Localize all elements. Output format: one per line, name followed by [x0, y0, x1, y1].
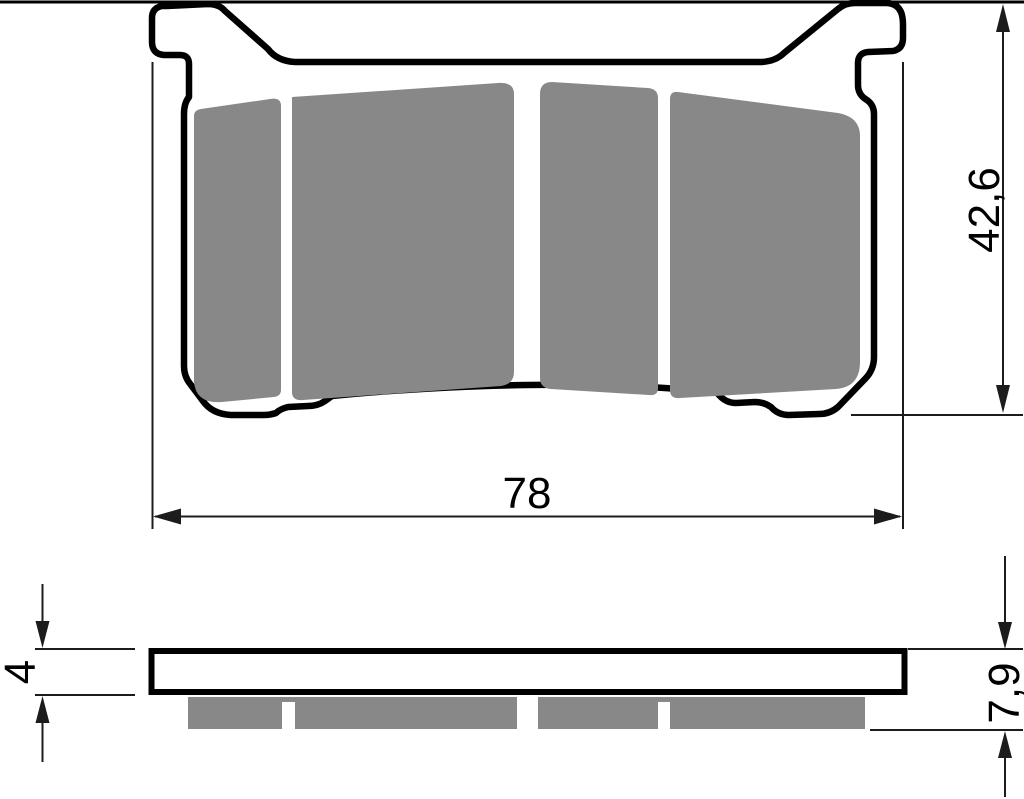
arrowhead-up-icon	[998, 731, 1012, 758]
friction-side-segment-4	[670, 697, 865, 729]
friction-segment-3	[540, 82, 658, 395]
friction-segment-2	[292, 83, 514, 400]
arrowhead-up-icon	[36, 696, 50, 723]
friction-material-side	[188, 697, 865, 729]
friction-side-segment-3	[538, 697, 658, 729]
width-dimension-label: 78	[503, 469, 552, 518]
backplate-side	[152, 651, 905, 692]
technical-drawing-canvas: 78 42,6 4 7,9	[0, 0, 1024, 799]
backplate-thickness-dimension: 4	[0, 584, 135, 762]
groove-bridge-left	[280, 697, 297, 702]
arrowhead-right-icon	[874, 509, 902, 525]
arrowhead-left-icon	[153, 509, 181, 525]
backplate-thickness-label: 4	[0, 660, 45, 684]
height-dimension-label: 42,6	[960, 167, 1009, 253]
plan-view	[152, 3, 903, 415]
arrowhead-down-icon	[998, 622, 1012, 649]
arrowhead-down-icon	[36, 621, 50, 648]
friction-side-segment-1	[188, 697, 282, 729]
total-thickness-label: 7,9	[980, 662, 1024, 723]
arrowhead-up-icon	[996, 4, 1010, 32]
groove-bridge-right	[656, 697, 672, 702]
friction-side-segment-2	[295, 697, 517, 729]
side-view	[152, 651, 905, 729]
friction-segment-1	[194, 99, 281, 403]
arrowhead-down-icon	[996, 385, 1010, 413]
brake-pad-drawing: 78 42,6 4 7,9	[0, 0, 1024, 799]
friction-segment-4	[670, 92, 860, 398]
